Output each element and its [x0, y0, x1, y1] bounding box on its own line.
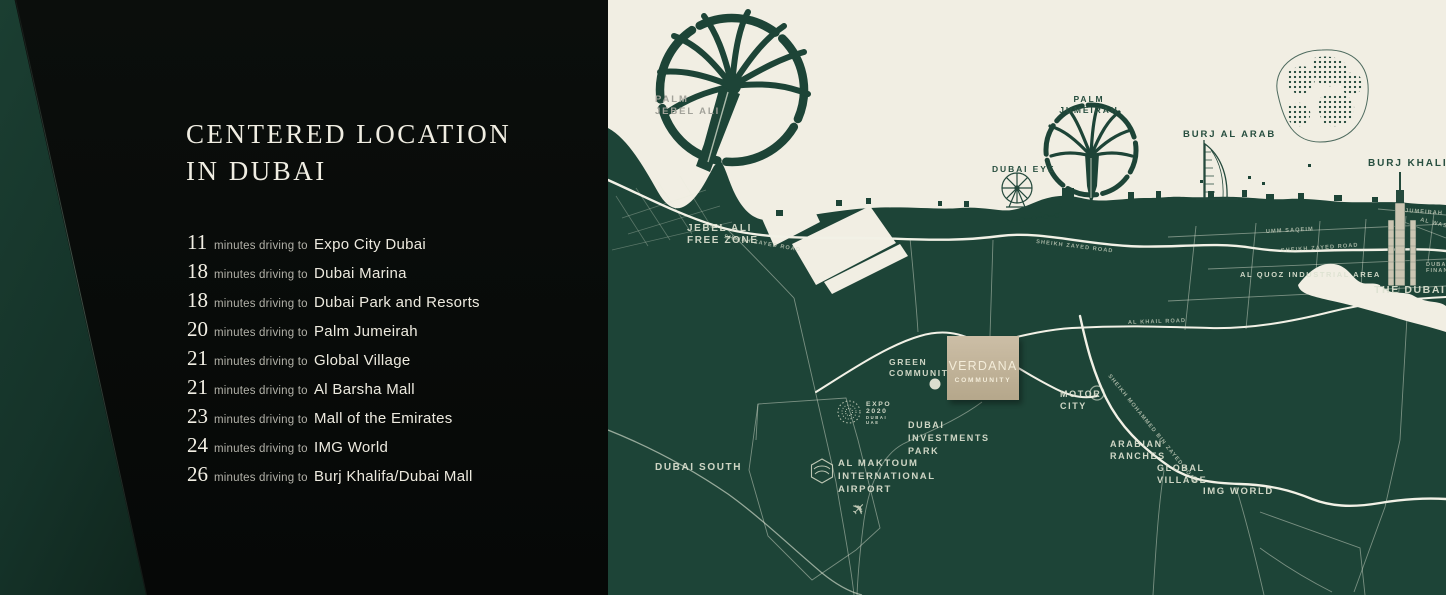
label-expo: EXPO	[866, 401, 891, 408]
destination-name: IMG World	[314, 439, 388, 456]
community-box-subtitle: COMMUNITY	[955, 377, 1012, 384]
driving-times-list: 11minutes driving toExpo City Dubai 18mi…	[187, 230, 480, 484]
minutes-value: 18	[187, 288, 214, 313]
unit-label: minutes driving to	[214, 298, 314, 310]
label-dubai-investments-park: DUBAI	[908, 420, 945, 430]
unit-label: minutes driving to	[214, 385, 314, 397]
minutes-value: 20	[187, 317, 214, 342]
destination-name: Dubai Park and Resorts	[314, 294, 480, 311]
list-item: 11minutes driving toExpo City Dubai	[187, 230, 480, 252]
list-item: 20minutes driving toPalm Jumeirah	[187, 317, 480, 339]
dubai-map: PALM JEBEL ALI PALM JUMEIRAH DUBAI EYE B…	[608, 0, 1446, 595]
verdana-community-box: VERDANA COMMUNITY	[947, 336, 1019, 400]
destination-name: Mall of the Emirates	[314, 410, 453, 427]
unit-label: minutes driving to	[214, 356, 314, 368]
minutes-value: 18	[187, 259, 214, 284]
svg-text:INTERNATIONAL: INTERNATIONAL	[838, 471, 936, 482]
label-al-maktoum-airport: AL MAKTOUM	[838, 458, 919, 469]
label-the-dubai-mall: THE DUBAI MALL	[1374, 284, 1446, 296]
svg-text:AIRPORT: AIRPORT	[838, 484, 892, 495]
list-item: 24minutes driving toIMG World	[187, 433, 480, 455]
title-line-2: IN DUBAI	[186, 153, 511, 190]
destination-name: Palm Jumeirah	[314, 323, 418, 340]
label-palm-jebel-ali: PALM	[655, 94, 689, 105]
minutes-value: 23	[187, 404, 214, 429]
destination-name: Expo City Dubai	[314, 236, 426, 253]
svg-text:INVESTMENTS: INVESTMENTS	[908, 433, 990, 443]
page-title: CENTERED LOCATION IN DUBAI	[186, 116, 511, 190]
unit-label: minutes driving to	[214, 472, 314, 484]
svg-text:2020: 2020	[866, 408, 888, 415]
minutes-value: 26	[187, 462, 214, 487]
info-panel: CENTERED LOCATION IN DUBAI 11minutes dri…	[0, 0, 608, 595]
minutes-value: 11	[187, 230, 214, 255]
label-palm-jumeirah: PALM	[1073, 94, 1104, 104]
svg-text:UAE: UAE	[866, 420, 880, 425]
unit-label: minutes driving to	[214, 240, 314, 252]
label-motor-city: MOTOR	[1060, 389, 1101, 399]
unit-label: minutes driving to	[214, 269, 314, 281]
svg-text:RANCHES: RANCHES	[1110, 451, 1166, 461]
label-dubai-south: DUBAI SOUTH	[655, 462, 742, 473]
svg-text:PARK: PARK	[908, 446, 939, 456]
list-item: 18minutes driving toDubai Park and Resor…	[187, 288, 480, 310]
green-community-marker	[930, 379, 941, 390]
title-line-1: CENTERED LOCATION	[186, 116, 511, 153]
label-arabian-ranches: ARABIAN	[1110, 439, 1163, 449]
list-item: 21minutes driving toGlobal Village	[187, 346, 480, 368]
label-green-community: GREEN	[889, 357, 927, 367]
list-item: 21minutes driving toAl Barsha Mall	[187, 375, 480, 397]
unit-label: minutes driving to	[214, 327, 314, 339]
svg-text:COMMUNITY: COMMUNITY	[889, 368, 956, 378]
list-item: 23minutes driving toMall of the Emirates	[187, 404, 480, 426]
minutes-value: 21	[187, 346, 214, 371]
destination-name: Burj Khalifa/Dubai Mall	[314, 468, 473, 485]
minutes-value: 21	[187, 375, 214, 400]
minutes-value: 24	[187, 433, 214, 458]
unit-label: minutes driving to	[214, 414, 314, 426]
svg-text:CITY: CITY	[1060, 401, 1087, 411]
label-burj-khalifa: BURJ KHALIFA	[1368, 158, 1446, 169]
label-jebel-ali-free-zone: JEBEL ALI	[687, 223, 752, 234]
label-img-world: IMG WORLD	[1203, 486, 1274, 497]
destination-name: Global Village	[314, 352, 411, 369]
label-al-quoz: AL QUOZ INDUSTRIAL AREA	[1240, 270, 1381, 279]
list-item: 18minutes driving toDubai Marina	[187, 259, 480, 281]
svg-text:VILLAGE: VILLAGE	[1157, 475, 1207, 485]
svg-text:FINANCIAL CENTRE: FINANCIAL CENTRE	[1426, 268, 1446, 274]
community-box-title: VERDANA	[949, 359, 1018, 373]
destination-name: Al Barsha Mall	[314, 381, 415, 398]
map-canvas: PALM JEBEL ALI PALM JUMEIRAH DUBAI EYE B…	[608, 0, 1446, 595]
destination-name: Dubai Marina	[314, 265, 407, 282]
unit-label: minutes driving to	[214, 443, 314, 455]
list-item: 26minutes driving toBurj Khalifa/Dubai M…	[187, 462, 480, 484]
label-burj-al-arab: BURJ AL ARAB	[1183, 129, 1276, 140]
svg-text:JUMEIRAH: JUMEIRAH	[1059, 105, 1119, 115]
svg-text:JEBEL ALI: JEBEL ALI	[655, 106, 720, 117]
label-dubai-eye: DUBAI EYE	[992, 164, 1055, 174]
